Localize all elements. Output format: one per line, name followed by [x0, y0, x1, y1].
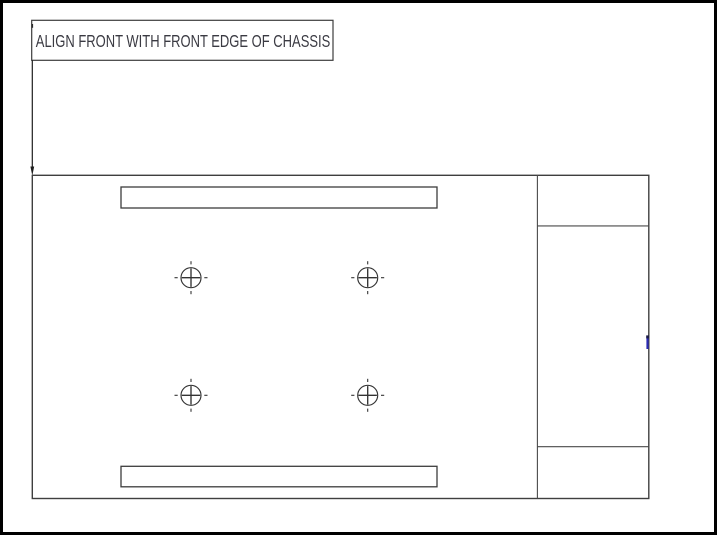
- svg-text:ALIGN FRONT WITH FRONT EDGE OF: ALIGN FRONT WITH FRONT EDGE OF CHASSIS: [36, 31, 331, 51]
